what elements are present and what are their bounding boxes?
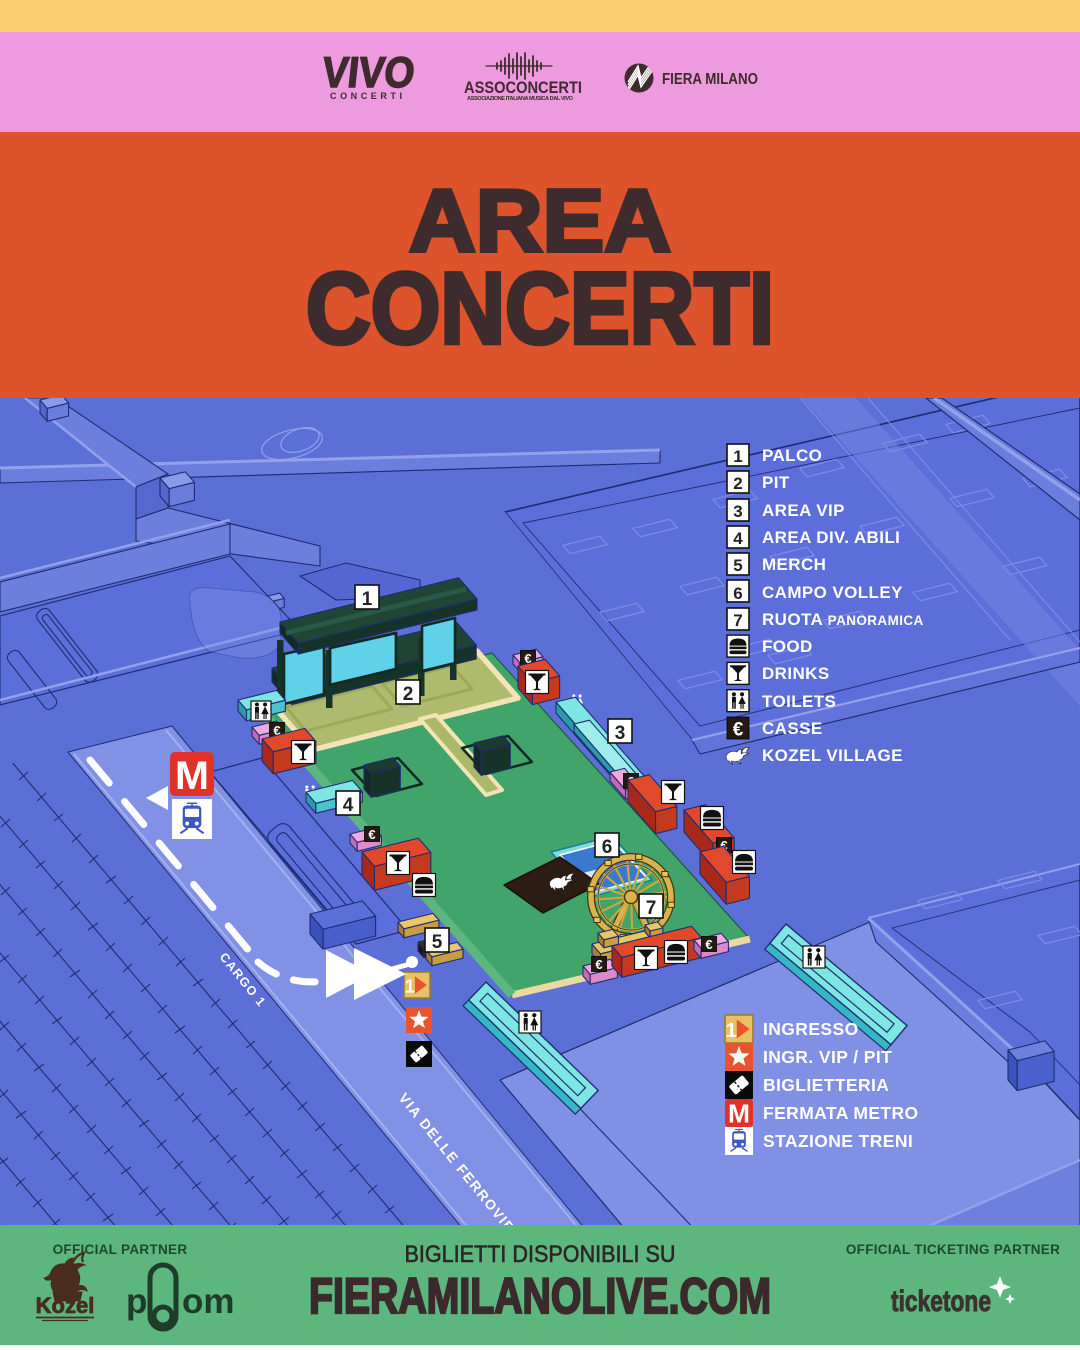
svg-text:TOILETS: TOILETS bbox=[762, 692, 836, 711]
svg-text:2: 2 bbox=[733, 474, 742, 493]
svg-text:M: M bbox=[175, 754, 209, 798]
svg-text:CONCERTI: CONCERTI bbox=[306, 253, 774, 365]
svg-text:CONCERTI: CONCERTI bbox=[330, 91, 406, 101]
svg-text:Kozel: Kozel bbox=[36, 1293, 95, 1318]
svg-text:1: 1 bbox=[405, 976, 415, 996]
svg-text:PIT: PIT bbox=[762, 473, 790, 492]
svg-text:6: 6 bbox=[602, 837, 613, 858]
svg-text:4: 4 bbox=[733, 529, 743, 548]
svg-text:CAMPO VOLLEY: CAMPO VOLLEY bbox=[762, 583, 903, 602]
svg-text:7: 7 bbox=[646, 898, 657, 919]
svg-text:1: 1 bbox=[726, 1020, 737, 1042]
svg-text:OFFICIAL TICKETING PARTNER: OFFICIAL TICKETING PARTNER bbox=[846, 1242, 1060, 1257]
svg-text:5: 5 bbox=[733, 556, 742, 575]
svg-text:AREA VIP: AREA VIP bbox=[762, 501, 845, 520]
svg-text:5: 5 bbox=[432, 932, 443, 953]
svg-text:AREA DIV. ABILI: AREA DIV. ABILI bbox=[762, 528, 900, 547]
svg-text:MERCH: MERCH bbox=[762, 555, 826, 574]
svg-text:3: 3 bbox=[615, 723, 626, 744]
svg-text:ASSOCIAZIONE ITALIANA MUSICA D: ASSOCIAZIONE ITALIANA MUSICA DAL VIVO bbox=[467, 96, 574, 102]
svg-text:OFFICIAL PARTNER: OFFICIAL PARTNER bbox=[53, 1242, 188, 1257]
svg-text:BIGLIETTI DISPONIBILI SU: BIGLIETTI DISPONIBILI SU bbox=[405, 1241, 676, 1268]
svg-text:M: M bbox=[728, 1099, 750, 1129]
svg-text:INGR. VIP / PIT: INGR. VIP / PIT bbox=[763, 1047, 892, 1067]
svg-text:BIGLIETTERIA: BIGLIETTERIA bbox=[763, 1075, 889, 1095]
svg-text:FOOD: FOOD bbox=[762, 637, 813, 656]
svg-text:RUOTA PANORAMICA: RUOTA PANORAMICA bbox=[762, 610, 924, 629]
svg-text:p: p bbox=[126, 1282, 147, 1321]
svg-text:CASSE: CASSE bbox=[762, 719, 823, 738]
svg-text:€: € bbox=[733, 719, 744, 740]
svg-text:FIERA MILANO: FIERA MILANO bbox=[662, 71, 758, 88]
svg-text:€: € bbox=[705, 937, 712, 952]
svg-text:KOZEL VILLAGE: KOZEL VILLAGE bbox=[762, 746, 903, 765]
svg-text:VIVO: VIVO bbox=[320, 49, 417, 97]
svg-text:€: € bbox=[595, 957, 602, 972]
svg-text:FERMATA METRO: FERMATA METRO bbox=[763, 1103, 919, 1123]
svg-text:INGRESSO: INGRESSO bbox=[763, 1019, 859, 1039]
svg-text:1: 1 bbox=[362, 589, 373, 610]
svg-text:FIERAMILANOLIVE.COM: FIERAMILANOLIVE.COM bbox=[309, 1268, 771, 1324]
svg-text:2: 2 bbox=[403, 684, 414, 705]
svg-text:STAZIONE TRENI: STAZIONE TRENI bbox=[763, 1131, 913, 1151]
svg-text:ticketone: ticketone bbox=[891, 1285, 991, 1318]
svg-text:1: 1 bbox=[733, 447, 742, 466]
svg-text:ASSOCONCERTI: ASSOCONCERTI bbox=[464, 78, 582, 97]
svg-text:3: 3 bbox=[733, 502, 742, 521]
svg-text:DRINKS: DRINKS bbox=[762, 664, 830, 683]
svg-text:4: 4 bbox=[343, 795, 354, 816]
svg-text:om: om bbox=[182, 1282, 235, 1321]
svg-text:€: € bbox=[368, 827, 375, 842]
svg-text:7: 7 bbox=[733, 611, 742, 630]
svg-text:PALCO: PALCO bbox=[762, 446, 822, 465]
svg-text:6: 6 bbox=[733, 584, 742, 603]
